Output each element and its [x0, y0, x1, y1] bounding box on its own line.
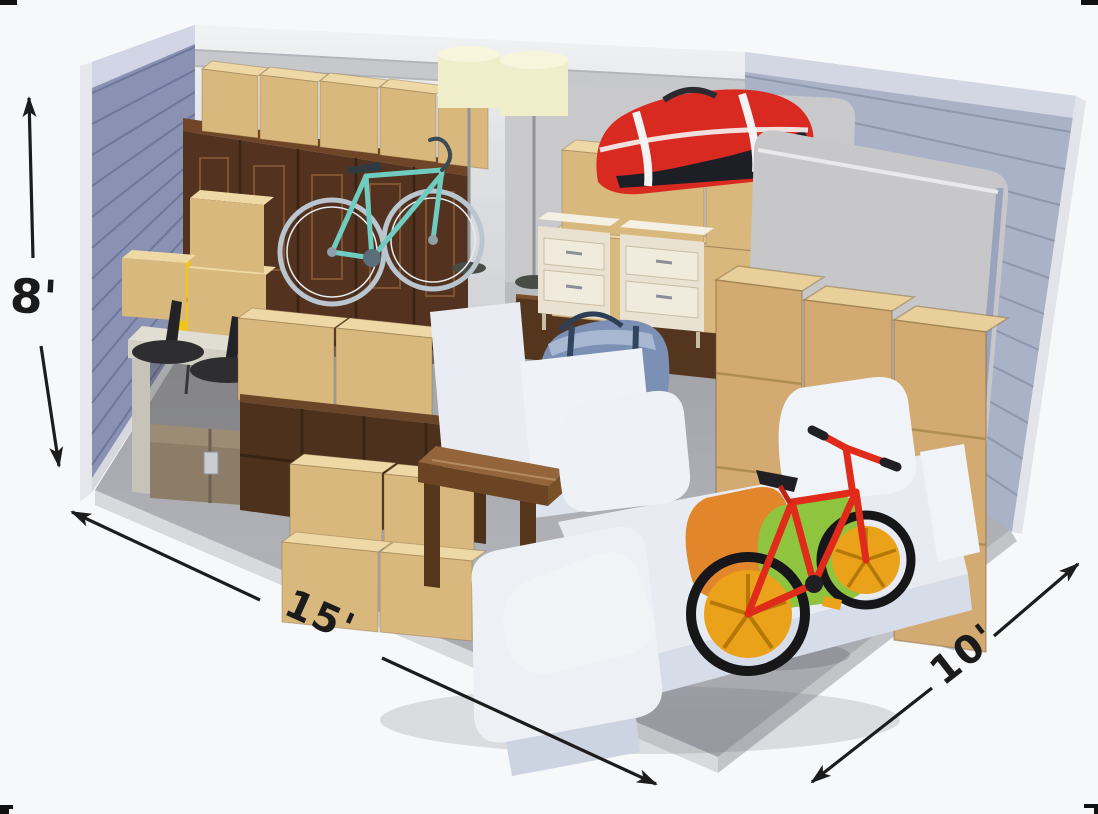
pillow-white: [559, 391, 691, 512]
pillow-white: [779, 377, 917, 502]
height-dimension-label: 8': [9, 269, 59, 326]
crop-mark-top-left: [0, 0, 17, 5]
storage-unit-illustration: 8' 15' 10': [0, 0, 1098, 814]
crop-mark-top-right: [1081, 0, 1098, 5]
storage-unit-scene: [0, 0, 1098, 814]
